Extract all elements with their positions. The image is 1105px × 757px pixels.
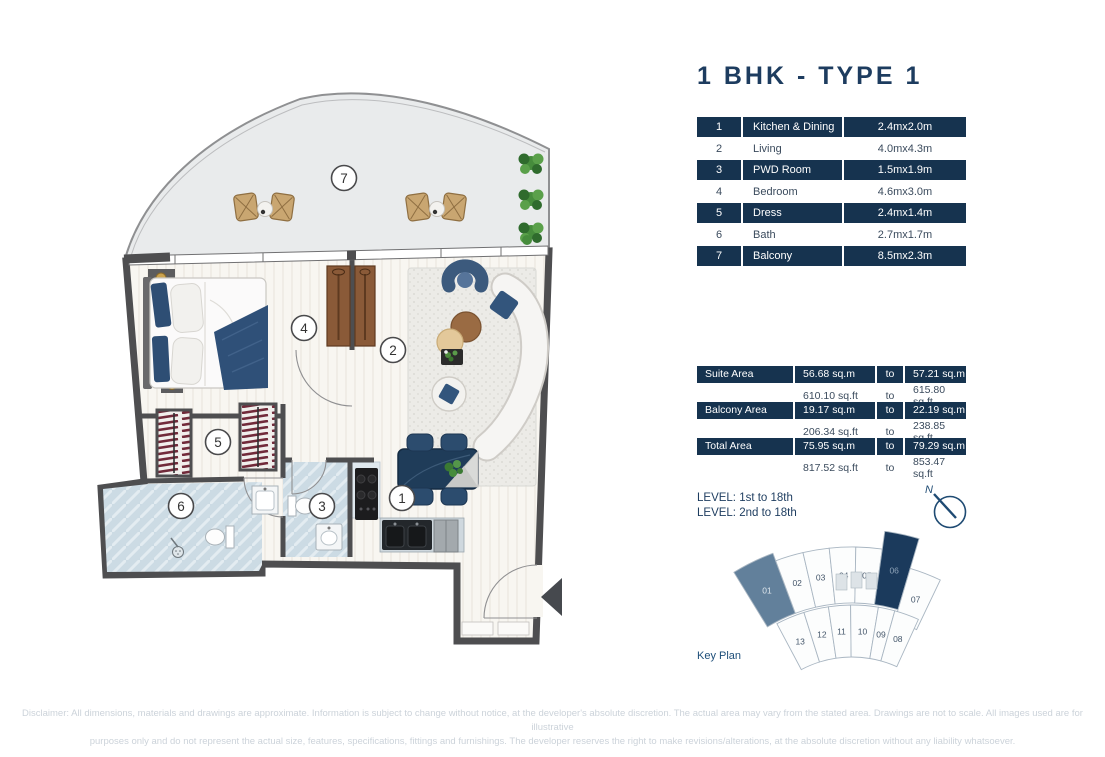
table-cell: PWD Room (743, 160, 842, 180)
table-row: 817.52 sq.ftto853.47 sq.ft (697, 456, 966, 473)
room-callout: 1 (390, 486, 415, 511)
table-cell: to (877, 366, 903, 383)
table-cell: 2.4mx1.4m (844, 203, 966, 223)
table-cell: 3 (697, 160, 741, 180)
balcony-plants (519, 154, 544, 246)
table-cell: 2 (697, 139, 741, 159)
room-callout: 3 (310, 494, 335, 519)
disclaimer-line: purposes only and do not represent the a… (0, 735, 1105, 749)
key-plan-unit-label: 10 (858, 626, 868, 636)
table-cell: 19.17 sq.m (795, 402, 875, 419)
svg-text:1: 1 (398, 491, 406, 506)
table-cell: Bath (743, 225, 842, 245)
brochure-page: 1234567 1 BHK - TYPE 1 1Kitchen & Dining… (0, 0, 1105, 757)
table-row: Total Area75.95 sq.mto79.29 sq.m (697, 438, 966, 455)
disclaimer-text: Disclaimer: All dimensions, materials an… (0, 707, 1105, 749)
room-callout: 4 (292, 316, 317, 341)
room-callout: 7 (332, 166, 357, 191)
key-plan: 01020304050607131211100908 (728, 531, 972, 673)
entry-door-gap (531, 565, 543, 617)
key-plan-unit-label: 02 (792, 578, 802, 588)
table-row: 1Kitchen & Dining2.4mx2.0m (697, 117, 966, 137)
key-plan-unit-label: 01 (762, 586, 772, 596)
key-plan-unit-label: 07 (911, 594, 921, 604)
page-title: 1 BHK - TYPE 1 (697, 62, 922, 91)
shower-icon (173, 547, 184, 558)
key-plan-unit-label: 11 (837, 626, 846, 636)
key-plan-unit-label: 13 (795, 636, 805, 646)
area-table: Suite Area56.68 sq.mto57.21 sq.m610.10 s… (697, 366, 966, 474)
key-plan-caption: Key Plan (697, 650, 741, 662)
table-cell: 7 (697, 246, 741, 266)
table-cell: to (877, 438, 903, 455)
entry-arrow-icon (541, 578, 562, 616)
svg-text:7: 7 (340, 171, 348, 186)
table-cell: 5 (697, 203, 741, 223)
table-row: Balcony Area19.17 sq.mto22.19 sq.m (697, 402, 966, 419)
room-dimension-table: 1Kitchen & Dining2.4mx2.0m2Living4.0mx4.… (697, 117, 966, 268)
key-plan-unit-label: 09 (876, 629, 886, 639)
table-cell: 79.29 sq.m (905, 438, 966, 455)
level-line: LEVEL: 1st to 18th (697, 491, 797, 506)
room-callout: 6 (169, 494, 194, 519)
table-cell: 75.95 sq.m (795, 438, 875, 455)
table-row: 4Bedroom4.6mx3.0m (697, 182, 966, 202)
table-cell: 817.52 sq.ft (795, 456, 875, 480)
table-cell: 4.0mx4.3m (844, 139, 966, 159)
table-cell: 2.4mx2.0m (844, 117, 966, 137)
table-cell: Balcony Area (697, 402, 793, 419)
level-line: LEVEL: 2nd to 18th (697, 506, 797, 521)
table-cell: 8.5mx2.3m (844, 246, 966, 266)
key-plan-core (851, 572, 862, 588)
table-cell: 4 (697, 182, 741, 202)
toilet (206, 529, 225, 545)
table-cell: 1 (697, 117, 741, 137)
svg-text:N: N (925, 484, 933, 496)
table-row: 2Living4.0mx4.3m (697, 139, 966, 159)
table-cell: 57.21 sq.m (905, 366, 966, 383)
key-plan-core (866, 573, 877, 589)
table-row: 206.34 sq.ftto238.85 sq.ft (697, 420, 966, 437)
table-cell: 4.6mx3.0m (844, 182, 966, 202)
key-plan-core (836, 574, 847, 590)
key-plan-unit-label: 06 (889, 566, 899, 576)
table-cell: 853.47 sq.ft (905, 456, 966, 480)
key-plan-unit-label: 12 (817, 629, 827, 639)
table-cell: 2.7mx1.7m (844, 225, 966, 245)
table-cell: Kitchen & Dining (743, 117, 842, 137)
table-row: 610.10 sq.ftto615.80 sq.ft (697, 384, 966, 401)
table-row: 7Balcony8.5mx2.3m (697, 246, 966, 266)
table-cell: 22.19 sq.m (905, 402, 966, 419)
table-cell: 6 (697, 225, 741, 245)
svg-text:4: 4 (300, 321, 308, 336)
room-callout: 5 (206, 430, 231, 455)
table-cell: 1.5mx1.9m (844, 160, 966, 180)
table-cell: Dress (743, 203, 842, 223)
svg-text:5: 5 (214, 435, 222, 450)
key-plan-unit-label: 08 (893, 634, 903, 644)
floor-plan: 1234567 (0, 0, 620, 700)
table-cell: Suite Area (697, 366, 793, 383)
table-cell: Bedroom (743, 182, 842, 202)
table-row: Suite Area56.68 sq.mto57.21 sq.m (697, 366, 966, 383)
room-callout: 2 (381, 338, 406, 363)
north-arrow-icon: N (920, 480, 978, 538)
table-cell: Total Area (697, 438, 793, 455)
table-row: 5Dress2.4mx1.4m (697, 203, 966, 223)
svg-text:6: 6 (177, 499, 185, 514)
table-cell: Living (743, 139, 842, 159)
table-cell: 56.68 sq.m (795, 366, 875, 383)
svg-text:2: 2 (389, 343, 397, 358)
table-row: 6Bath2.7mx1.7m (697, 225, 966, 245)
table-cell: to (877, 456, 903, 480)
bed (143, 269, 268, 393)
level-info: LEVEL: 1st to 18thLEVEL: 2nd to 18th (697, 491, 797, 521)
svg-text:3: 3 (318, 499, 326, 514)
key-plan-unit-label: 03 (816, 573, 826, 583)
table-cell: Balcony (743, 246, 842, 266)
table-cell (697, 456, 793, 480)
table-cell: to (877, 402, 903, 419)
disclaimer-line: Disclaimer: All dimensions, materials an… (0, 707, 1105, 735)
table-row: 3PWD Room1.5mx1.9m (697, 160, 966, 180)
